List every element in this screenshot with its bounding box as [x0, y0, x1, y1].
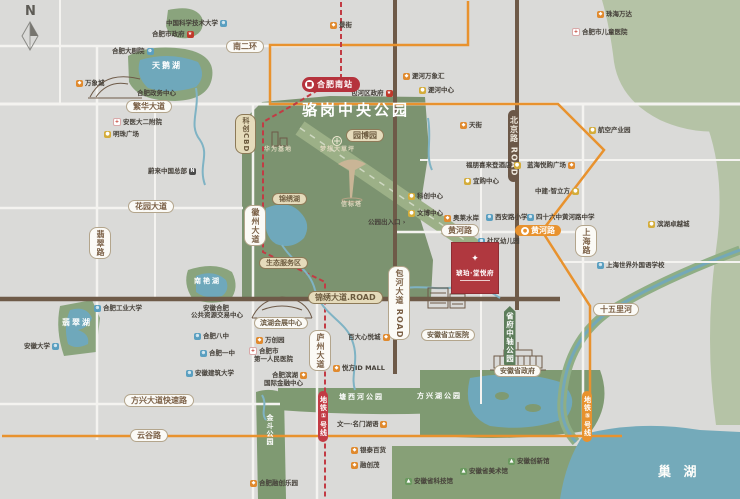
lm-binhu-expo-center: 滨湖会展中心 — [254, 317, 308, 329]
poi-anhui-university-text: 安徽大学 — [24, 343, 50, 350]
biz-icon: ● — [648, 221, 655, 228]
area-badge-eco-service: 生态服务区 — [259, 257, 308, 269]
area-badge-yuanboyuan-text: 园博园 — [353, 132, 377, 140]
school-icon: ⊕ — [486, 214, 493, 221]
shop-icon: ◆ — [330, 22, 337, 29]
park-title-luogang-text: 骆岗中央公园 — [302, 103, 410, 118]
road-badge-shiwuli-river: 十五里河 — [593, 303, 639, 316]
road-badge-shanghai-rd: 上海路 — [575, 225, 597, 257]
poi-first-people-hospital-line2-text: 第一人民医院 — [254, 356, 293, 363]
shop-icon: ◆ — [403, 73, 410, 80]
road-badge-yungu-rd-text: 云谷路 — [137, 432, 161, 440]
school-icon: ⊕ — [597, 262, 604, 269]
project-name: 琥珀·堂悦府 — [456, 267, 494, 277]
park-poi-beacon-tower: 信标塔 — [341, 202, 362, 208]
poi-lanhai-yuegou-plaza-text: 蓝海悦购广场 — [527, 162, 566, 169]
park-name-jindou-text: 金斗公园 — [266, 414, 273, 446]
metro-station-icon: ● — [521, 227, 529, 235]
road-badge-huanghe-rd-text: 黄河路 — [448, 227, 472, 235]
road-badge-jinxiu-ave: 锦绣大道.ROAD — [308, 291, 383, 304]
nio-icon: N — [189, 168, 196, 175]
park-poi-huawei-base: 华为基地 — [264, 147, 292, 153]
road-badge-luzhou-ave: 庐州大道 — [309, 330, 331, 371]
poi-hefei-sunac-land: ◆合肥融创乐园 — [250, 480, 298, 487]
shop-icon: ◆ — [256, 337, 263, 344]
poi-baida-xinyuecheng-text: 百大心悦城 — [348, 334, 381, 341]
poi-hefei-grand-theater-text: 合肥大剧院 — [112, 48, 145, 55]
poi-wanchuang-park: ◆万创园 — [256, 337, 285, 344]
area-badge-jinxiu-lake: 锦绣湖 — [272, 193, 307, 205]
poi-hefei-1st-school: ⊕合肥一中 — [200, 350, 235, 357]
biz-icon: ● — [408, 210, 415, 217]
poi-zhongjian-zhilifang-text: 中建·智立方 — [535, 188, 570, 195]
station-name: 合肥南站 — [317, 79, 353, 90]
poi-feihe-center: ●淝河中心 — [419, 87, 454, 94]
lm-anhui-provincial-hospital: 安徽省立医院 — [421, 329, 475, 341]
poi-anyi-2nd-hospital: +安医大二附院 — [113, 118, 162, 126]
poi-yigou-center-text: 宜购中心 — [473, 178, 499, 185]
poi-anhui-art-museum-text: 安徽省美术馆 — [469, 468, 508, 475]
poi-mingzhu-square: ●明珠广场 — [104, 131, 139, 138]
poi-hefei-1st-school-text: 合肥一中 — [209, 350, 235, 357]
poi-anhui-university: 安徽大学⊕ — [24, 343, 59, 350]
shop-icon: ◆ — [597, 11, 604, 18]
road-badge-shanghai-rd-text: 上海路 — [582, 228, 590, 255]
metro-line1-label: 地铁①号线 — [318, 391, 328, 442]
area-badge-jinxiu-lake-text: 锦绣湖 — [279, 196, 300, 203]
poi-nio-china-hq: 蔚来中国总部N — [148, 168, 196, 175]
shop-icon: ◆ — [76, 80, 83, 87]
poi-aolai-shuian-text: 奥莱水岸 — [453, 215, 479, 222]
poi-tianjie-mall-text: 天街 — [469, 122, 482, 129]
poi-hefei-city-gov-text: 合肥市政府 — [152, 31, 185, 38]
poi-baohe-district-gov: 包河区政府★ — [351, 90, 393, 97]
poi-nio-china-hq-text: 蔚来中国总部 — [148, 168, 187, 175]
poi-46th-middle-school: ⊕四十六中黄河路中学 — [527, 214, 595, 221]
shop-icon: ◆ — [250, 480, 257, 487]
biz-icon: ● — [104, 131, 111, 138]
poi-wenbo-center-text: 文博中心 — [417, 210, 443, 217]
lake-name-swan: 天鹅湖 — [152, 62, 182, 70]
gov-icon: ★ — [386, 90, 393, 97]
park-name-fangxinghu-text: 方兴湖公园 — [417, 393, 462, 400]
poi-kechuang-center-text: 科创中心 — [417, 193, 443, 200]
train-icon: ■ — [305, 80, 314, 89]
school-icon: ⊕ — [94, 305, 101, 312]
poi-xianlu-primary-school: ⊕西安路小学 — [486, 214, 528, 221]
poi-kechuang-center: ●科创中心 — [408, 193, 443, 200]
road-badge-fangxing-expwy: 方兴大道快速路 — [124, 394, 194, 407]
biz-icon: ● — [464, 178, 471, 185]
poi-hefei-sunac-land-text: 合肥融创乐园 — [259, 480, 298, 487]
poi-aviation-industry-park-text: 航空产业园 — [598, 127, 631, 134]
school-icon: ⊕ — [527, 214, 534, 221]
poi-first-people-hospital-line2: 第一人民医院 — [254, 356, 293, 363]
road-badge-luzhou-ave-text: 庐州大道 — [316, 333, 324, 369]
poi-feihe-mixc-text: 淝河万象汇 — [412, 73, 445, 80]
poi-anhui-art-museum: ▲安徽省美术馆 — [460, 468, 508, 475]
project-crest-icon: ✦ — [471, 255, 479, 264]
poi-baohe-district-gov-text: 包河区政府 — [351, 90, 384, 97]
poi-resource-center-line2-text: 公共资源交易中心 — [191, 312, 243, 319]
road-badge-fangxing-expwy-text: 方兴大道快速路 — [131, 397, 187, 405]
lake-name-feicui: 翡翠湖 — [62, 319, 92, 327]
poi-anyi-2nd-hospital-text: 安医大二附院 — [123, 119, 162, 126]
area-badge-yuanboyuan: 园博园 — [346, 129, 384, 142]
poi-hefei-8th-school: ⊕合肥八中 — [194, 333, 229, 340]
poi-46th-middle-school-text: 四十六中黄河路中学 — [536, 214, 595, 221]
poi-shanghai-foreign-school: ⊕上海世界外国语学校 — [597, 262, 665, 269]
poi-ustc-text: 中国科学技术大学 — [166, 20, 218, 27]
road-badge-huizhou-ave: 徽州大道 — [244, 205, 266, 246]
poi-binhu-excellence-city-text: 滨湖卓越城 — [657, 221, 690, 228]
poi-mixc-mall: ◆万象城 — [76, 80, 105, 87]
road-badge-huizhou-ave-text: 徽州大道 — [251, 208, 259, 244]
poi-binhu-ifc-line1-text: 合肥滨湖 — [272, 372, 298, 379]
shop-icon: ◆ — [383, 334, 390, 341]
poi-resource-center-line2: 公共资源交易中心 — [191, 312, 243, 319]
map-canvas: N 骆岗中央公园天鹅湖翡翠湖南艳湖巢 湖塘西河公园方兴湖公园金斗公园南二环繁华大… — [0, 0, 740, 499]
lm-anhui-provincial-gov-text: 安徽省政府 — [500, 368, 535, 375]
museum-icon: ▲ — [508, 458, 515, 465]
park-poi-dream-lawn-text: 梦想大草坪 — [320, 147, 355, 153]
school-icon: ⊕ — [220, 20, 227, 27]
poi-yuefang-id-mall-text: 悦方ID MALL — [342, 365, 385, 372]
road-badge-fanhua-ave: 繁华大道 — [126, 100, 172, 113]
shop-icon: ◆ — [460, 122, 467, 129]
road-badge-beijing-rd: 北京路 ROAD — [508, 110, 519, 182]
poi-mixc-mall-text: 万象城 — [85, 80, 105, 87]
poi-children-hospital: +合肥市儿童医院 — [572, 28, 628, 36]
poi-hefei-grand-theater: 合肥大剧院⊕ — [112, 48, 154, 55]
road-badge-baohe-ave: 包河大道 ROAD — [388, 266, 410, 340]
area-badge-eco-service-text: 生态服务区 — [266, 260, 301, 267]
poi-hefei-8th-school-text: 合肥八中 — [203, 333, 229, 340]
school-icon: ⊕ — [52, 343, 59, 350]
school-icon: ⊕ — [186, 370, 193, 377]
poi-wanchuang-park-text: 万创园 — [265, 337, 285, 344]
road-badge-south-2nd-ring: 南二环 — [226, 40, 264, 53]
poi-shanghai-foreign-school-text: 上海世界外国语学校 — [606, 262, 665, 269]
poi-aolai-shuian: ◆奥莱水岸 — [444, 215, 479, 222]
station-badge-huanghe-rd: ●黄河路 — [515, 225, 561, 236]
hospital-icon: + — [249, 347, 257, 355]
poi-feihe-mixc: ◆淝河万象汇 — [403, 73, 445, 80]
poi-zhuhai-wanda-text: 珠海万达 — [606, 11, 632, 18]
lm-anhui-provincial-gov: 安徽省政府 — [494, 365, 541, 377]
road-badge-huayuan-ave-text: 花园大道 — [135, 203, 167, 211]
poi-children-hospital-text: 合肥市儿童医院 — [582, 29, 628, 36]
poi-park-entrance-text: 公园出入口 › — [368, 219, 405, 226]
poi-wenbo-center: ●文博中心 — [408, 210, 443, 217]
poi-rongchuang-mall-text: 融创茂 — [360, 462, 380, 469]
poi-wenyi-mingmen-text: 文一·名门湖语 — [337, 421, 378, 428]
lake-name-swan-text: 天鹅湖 — [152, 62, 182, 70]
poi-zhongjian-zhilifang: 中建·智立方● — [535, 188, 579, 195]
poi-tianjie-mall: ◆天街 — [460, 122, 482, 129]
poi-anhui-science-museum-text: 安徽省科技馆 — [414, 478, 453, 485]
lake-name-chaohu: 巢 湖 — [658, 466, 701, 479]
park-poi-huawei-base-text: 华为基地 — [264, 147, 292, 153]
road-badge-yungu-rd: 云谷路 — [130, 429, 168, 442]
station-badge-huanghe-rd-text: 黄河路 — [531, 227, 555, 235]
poi-jing-street: ◆景街 — [330, 22, 352, 29]
metro-line1-label-text: 地铁①号线 — [320, 396, 327, 437]
poi-yintai-dept-store-text: 银泰百货 — [360, 447, 386, 454]
lm-anhui-provincial-hospital-text: 安徽省立医院 — [427, 332, 469, 339]
shop-icon: ◆ — [351, 447, 358, 454]
park-poi-beacon-tower-text: 信标塔 — [341, 202, 362, 208]
shop-icon: ◆ — [300, 372, 307, 379]
biz-icon: ● — [419, 87, 426, 94]
park-name-fangxinghu: 方兴湖公园 — [417, 393, 462, 400]
road-badge-jinxiu-ave-text: 锦绣大道.ROAD — [315, 294, 376, 302]
road-badge-feicui-rd-text: 翡翠路 — [96, 230, 104, 257]
lake-name-feicui-text: 翡翠湖 — [62, 319, 92, 327]
poi-hefei-city-gov: 合肥市政府★ — [152, 31, 194, 38]
area-badge-kechuang-cbd-text: 科创CBD — [242, 117, 249, 152]
poi-binhu-excellence-city: ●滨湖卓越城 — [648, 221, 690, 228]
lake-name-nanyan-text: 南艳湖 — [194, 278, 221, 285]
poi-hefei-tech-university: ⊕合肥工业大学 — [94, 305, 142, 312]
park-title-luogang: 骆岗中央公园 — [302, 103, 410, 118]
poi-feihe-center-text: 淝河中心 — [428, 87, 454, 94]
metro-line5-label-text: 地铁⑤号线 — [584, 396, 591, 437]
lm-binhu-expo-center-text: 滨湖会展中心 — [260, 320, 302, 327]
park-name-tangxihe-text: 塘西河公园 — [339, 394, 384, 401]
poi-baida-xinyuecheng: 百大心悦城◆ — [348, 334, 390, 341]
shop-icon: ◆ — [333, 365, 340, 372]
road-badge-fanhua-ave-text: 繁华大道 — [133, 103, 165, 111]
park-poi-dream-lawn: 梦想大草坪 — [320, 147, 355, 153]
poi-yigou-center: ●宜购中心 — [464, 178, 499, 185]
map-labels-layer: 骆岗中央公园天鹅湖翡翠湖南艳湖巢 湖塘西河公园方兴湖公园金斗公园南二环繁华大道花… — [0, 0, 740, 499]
poi-anhui-innovation-hall-text: 安徽创新馆 — [517, 458, 550, 465]
poi-zhuhai-wanda: ◆珠海万达 — [597, 11, 632, 18]
lake-name-chaohu-text: 巢 湖 — [658, 466, 701, 479]
road-badge-feicui-rd: 翡翠路 — [89, 227, 111, 259]
road-badge-huanghe-rd: 黄河路 — [441, 224, 479, 237]
museum-icon: ▲ — [460, 468, 467, 475]
poi-anhui-jianzhu-university-text: 安徽建筑大学 — [195, 370, 234, 377]
compass-n-letter: N — [16, 4, 46, 19]
biz-icon: ● — [408, 193, 415, 200]
hospital-icon: + — [572, 28, 580, 36]
poi-rongchuang-mall: ◆融创茂 — [351, 462, 380, 469]
poi-yintai-dept-store: ◆银泰百货 — [351, 447, 386, 454]
poi-mingzhu-square-text: 明珠广场 — [113, 131, 139, 138]
poi-anhui-science-museum: ▲安徽省科技馆 — [405, 478, 453, 485]
biz-icon: ● — [589, 127, 596, 134]
poi-hefei-gov-center-text: 合肥政务中心 — [137, 90, 176, 97]
poi-wenyi-mingmen: 文一·名门湖语◆ — [337, 421, 387, 428]
biz-icon: ● — [514, 162, 521, 169]
hospital-icon: + — [113, 118, 121, 126]
museum-icon: ▲ — [405, 478, 412, 485]
poi-lanhai-yuegou-plaza: 蓝海悦购广场◆ — [527, 162, 575, 169]
school-icon: ⊕ — [147, 48, 154, 55]
area-badge-kechuang-cbd: 科创CBD — [235, 114, 256, 154]
poi-binhu-ifc-line2: 国际金融中心 — [264, 380, 303, 387]
shop-icon: ◆ — [380, 421, 387, 428]
school-icon: ⊕ — [200, 350, 207, 357]
road-badge-baohe-ave-text: 包河大道 ROAD — [395, 269, 403, 338]
project-divider — [460, 280, 490, 281]
poi-hefei-tech-university-text: 合肥工业大学 — [103, 305, 142, 312]
poi-anhui-innovation-hall: ▲安徽创新馆 — [508, 458, 550, 465]
biz-icon: ● — [572, 188, 579, 195]
poi-ustc: 中国科学技术大学⊕ — [166, 20, 227, 27]
gov-icon: ★ — [187, 31, 194, 38]
shop-icon: ◆ — [351, 462, 358, 469]
compass: N — [16, 4, 46, 19]
poi-four-points-hotel-text: 福朋喜来登酒店 — [466, 162, 512, 169]
advertised-project-block: ✦ 琥珀·堂悦府 — [451, 242, 499, 294]
road-badge-shiwuli-river-text: 十五里河 — [600, 306, 632, 314]
shop-icon: ◆ — [444, 215, 451, 222]
poi-park-entrance: 公园出入口 › — [368, 219, 405, 226]
poi-first-people-hospital-line1-text: 合肥市 — [259, 348, 279, 355]
hefei-south-station-badge: ■ 合肥南站 — [302, 77, 360, 92]
road-badge-south-2nd-ring-text: 南二环 — [233, 43, 257, 51]
metro-line5-label: 地铁⑤号线 — [582, 391, 592, 442]
poi-four-points-hotel: 福朋喜来登酒店● — [466, 162, 521, 169]
road-badge-huayuan-ave: 花园大道 — [128, 200, 174, 213]
poi-aviation-industry-park: ●航空产业园 — [589, 127, 631, 134]
park-name-jindou: 金斗公园 — [266, 414, 273, 446]
poi-xianlu-primary-school-text: 西安路小学 — [495, 214, 528, 221]
area-badge-shengfu-axis-park: 省府中轴公园 — [504, 306, 516, 369]
shop-icon: ◆ — [568, 162, 575, 169]
poi-jing-street-text: 景街 — [339, 22, 352, 29]
poi-first-people-hospital-line1: +合肥市 — [249, 347, 279, 355]
poi-anhui-jianzhu-university: ⊕安徽建筑大学 — [186, 370, 234, 377]
poi-hefei-gov-center: 合肥政务中心 — [137, 90, 176, 97]
park-name-tangxihe: 塘西河公园 — [339, 394, 384, 401]
area-badge-shengfu-axis-park-text: 省府中轴公园 — [506, 312, 514, 363]
school-icon: ⊕ — [194, 333, 201, 340]
poi-binhu-ifc-line2-text: 国际金融中心 — [264, 380, 303, 387]
lake-name-nanyan: 南艳湖 — [194, 278, 221, 285]
poi-yuefang-id-mall: ◆悦方ID MALL — [333, 365, 385, 372]
poi-binhu-ifc-line1: 合肥滨湖◆ — [272, 372, 307, 379]
